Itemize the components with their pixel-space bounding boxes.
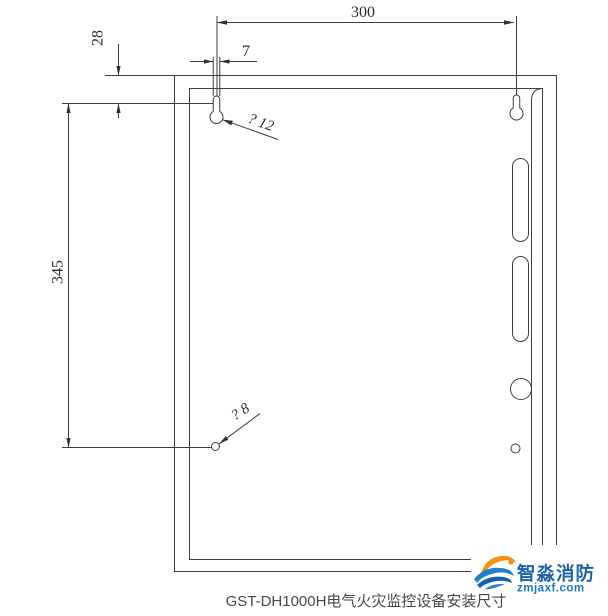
cable-hole-circle — [511, 379, 532, 400]
dim-7-label: 7 — [242, 43, 250, 60]
dim-300-label: 300 — [351, 4, 375, 21]
keyhole-left — [210, 96, 223, 124]
vent-slot-top — [513, 159, 529, 242]
dim-345-label: 345 — [50, 260, 67, 284]
panel-outer-outline — [175, 76, 557, 572]
keyhole-right — [510, 95, 523, 120]
diagram-caption: GST-DH1000H电气火灾监控设备安装尺寸 — [226, 593, 507, 610]
zmjaxf-logo: 智淼消防 zmjaxf.com — [471, 545, 608, 595]
right-flange-line — [532, 89, 543, 553]
bottom-hole-diameter-label: ? 8 — [228, 400, 253, 424]
screenshot-root: 300 7 28 345 ? 12 ? 8 智淼消防 zmjaxf.com GS… — [0, 0, 608, 616]
zmjaxf-brand-text: 智淼消防 — [517, 563, 595, 584]
installation-diagram-svg: 300 7 28 345 ? 12 ? 8 智淼消防 zmjaxf.com GS… — [0, 0, 608, 616]
dimension-arrowheads — [66, 20, 514, 447]
panel-inner-outline — [190, 89, 543, 560]
bottom-mount-hole — [212, 443, 220, 451]
zmjaxf-site-text: zmjaxf.com — [517, 583, 585, 595]
small-hole-circle — [511, 444, 520, 453]
dimension-lines — [62, 16, 517, 448]
keyhole-diameter-label: ? 12 — [246, 111, 277, 136]
vent-slot-bottom — [513, 257, 529, 342]
dim-28-label: 28 — [90, 30, 107, 46]
